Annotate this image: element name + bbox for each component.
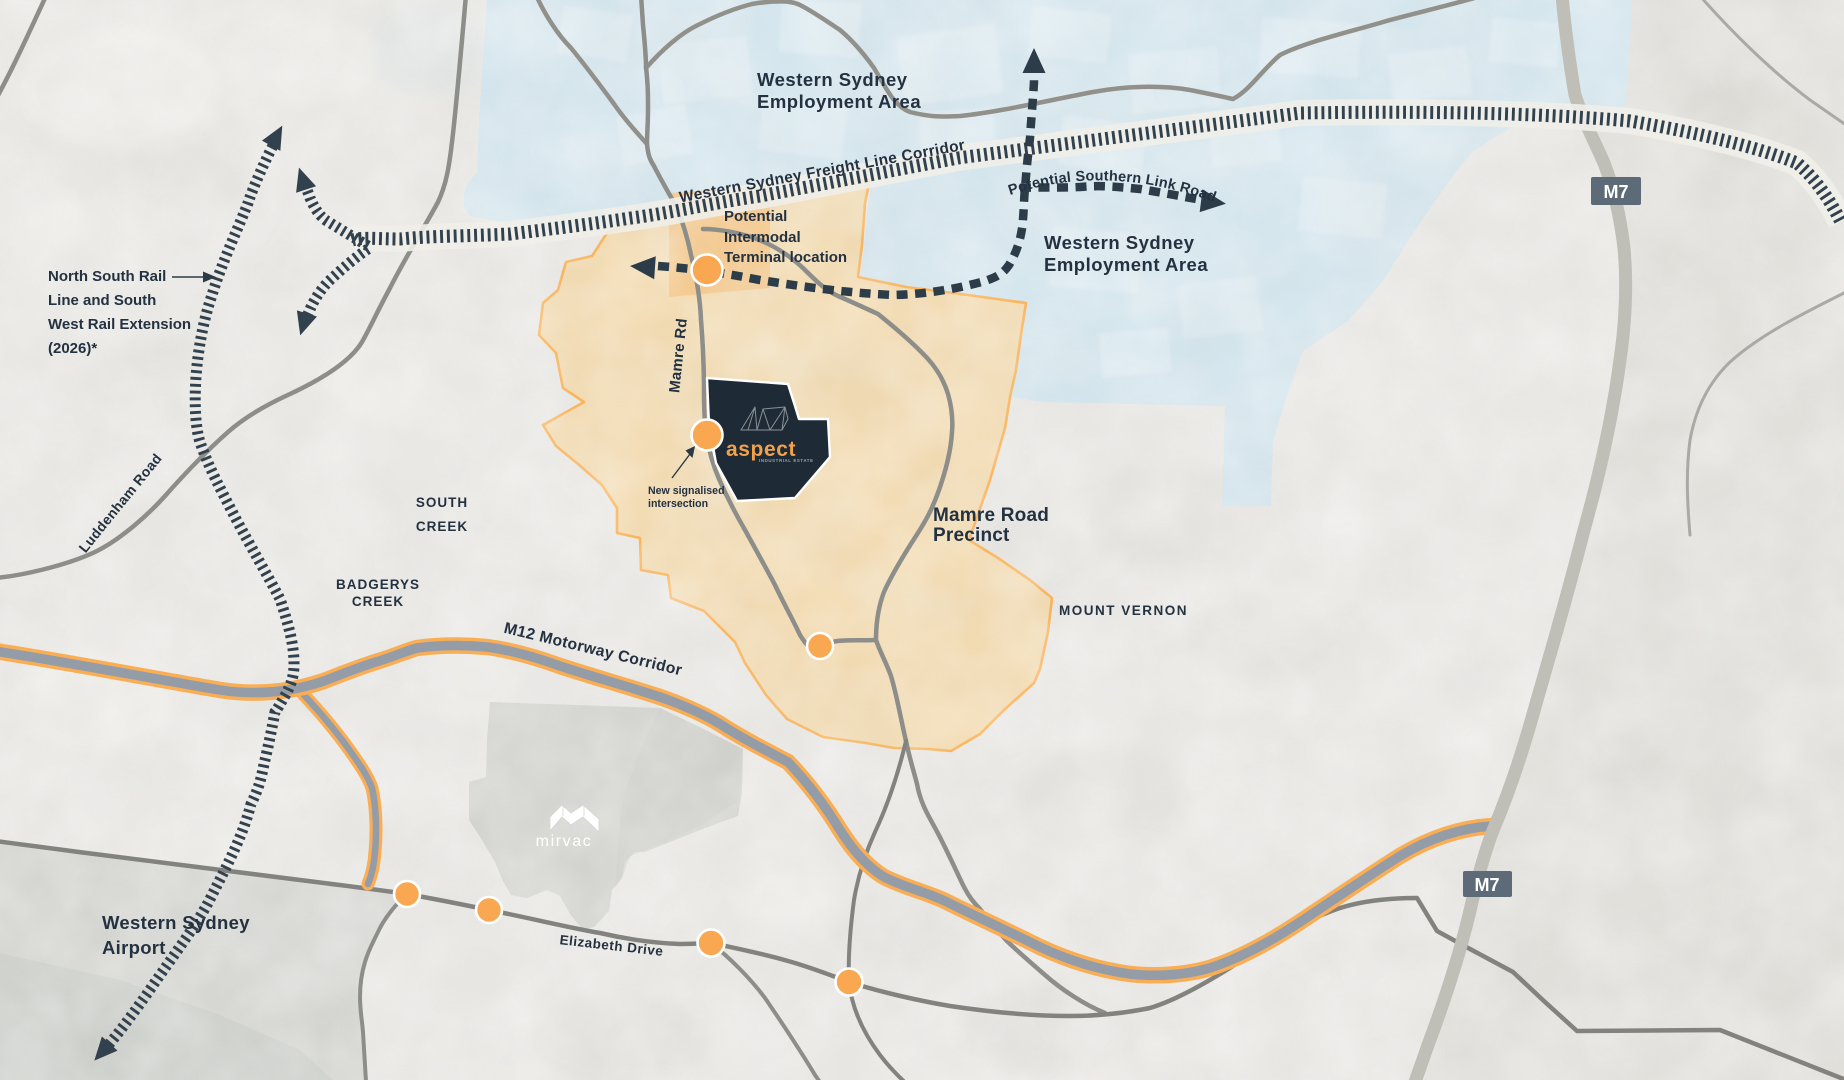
svg-text:Western Sydney: Western Sydney	[1044, 232, 1195, 253]
svg-text:Line and South: Line and South	[48, 292, 156, 309]
svg-text:Western Sydney: Western Sydney	[757, 69, 908, 90]
svg-text:West Rail Extension: West Rail Extension	[48, 316, 191, 333]
svg-text:Potential: Potential	[724, 208, 787, 225]
svg-text:North South Rail: North South Rail	[48, 268, 166, 285]
svg-text:Intermodal: Intermodal	[724, 229, 801, 246]
svg-text:Employment Area: Employment Area	[757, 91, 921, 112]
svg-text:Precinct: Precinct	[933, 525, 1010, 546]
svg-text:M7: M7	[1603, 182, 1628, 202]
svg-text:Airport: Airport	[102, 937, 166, 958]
svg-text:Western Sydney: Western Sydney	[102, 912, 250, 933]
svg-text:Employment Area: Employment Area	[1044, 254, 1208, 275]
svg-text:Mamre Road: Mamre Road	[933, 505, 1049, 526]
svg-text:MOUNT VERNON: MOUNT VERNON	[1059, 603, 1188, 618]
svg-text:M7: M7	[1474, 875, 1499, 895]
svg-text:(2026)*: (2026)*	[48, 340, 97, 357]
svg-text:BADGERYS: BADGERYS	[336, 577, 420, 592]
svg-text:CREEK: CREEK	[352, 594, 404, 609]
svg-text:New signalised: New signalised	[648, 485, 725, 497]
svg-text:CREEK: CREEK	[416, 519, 468, 534]
svg-text:intersection: intersection	[648, 498, 708, 510]
svg-text:Terminal location: Terminal location	[724, 249, 847, 266]
svg-text:mirvac: mirvac	[536, 833, 593, 850]
svg-text:SOUTH: SOUTH	[416, 495, 468, 510]
svg-text:INDUSTRIAL ESTATE: INDUSTRIAL ESTATE	[759, 458, 814, 463]
